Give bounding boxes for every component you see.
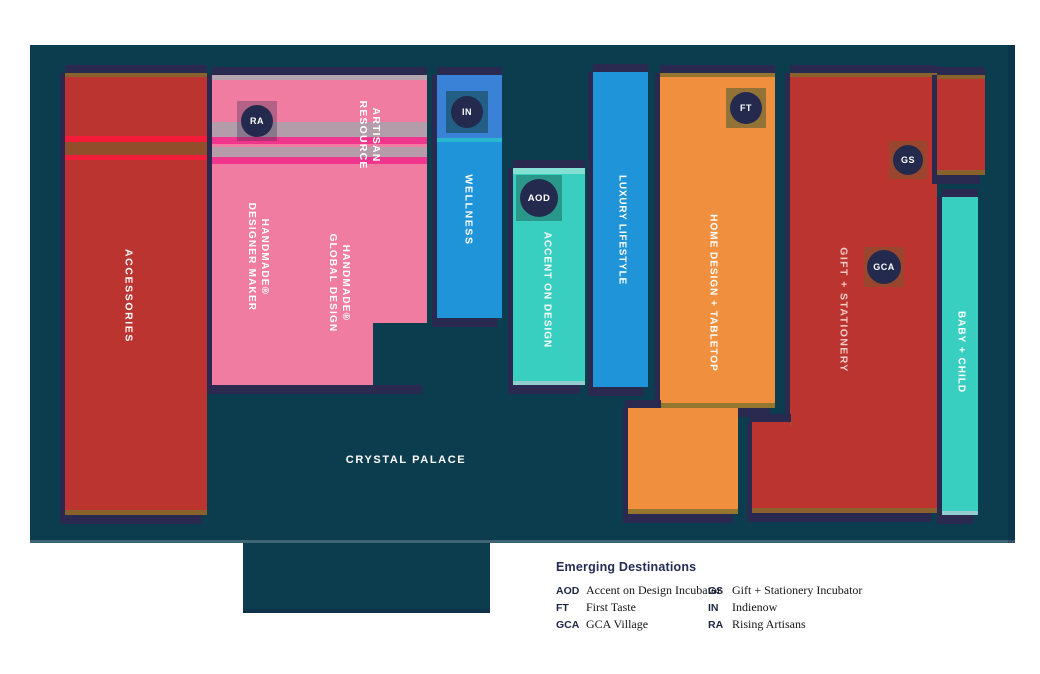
zone-edge-cap [625,400,661,408]
badge-accent-on-design-incubator[interactable]: AOD [520,179,558,217]
map-notch [373,323,427,385]
legend-column-right: GS Gift + Stationery Incubator IN Indien… [708,583,862,630]
label-line: HANDMADE® [258,203,271,311]
legend-code: IN [708,602,732,614]
badge-first-taste[interactable]: FT [730,92,762,124]
zone-gift-stationery[interactable] [790,73,937,513]
zone-label-gift-stationery: GIFT + STATIONERY [837,247,850,372]
zone-label-handmade-global-design: HANDMADE® GLOBAL DESIGN [326,234,352,333]
map-background-extension [243,543,490,613]
badge-gca-village[interactable]: GCA [867,250,901,284]
legend-code: GS [708,585,732,597]
floor-plan-page: ACCESSORIES ARTISAN RESOURCE HANDMADE® D… [0,0,1040,674]
legend-entry-ra: RA Rising Artisans [708,617,862,630]
legend-name: First Taste [586,600,636,615]
legend-code: FT [556,602,586,614]
legend-title: Emerging Destinations [556,560,896,574]
legend-code: GCA [556,619,586,631]
label-line: ARTISAN [369,100,382,169]
legend-name: Gift + Stationery Incubator [732,583,862,598]
legend-name: Accent on Design Incubator [586,583,721,598]
legend-entry-gca: GCA GCA Village [556,617,704,630]
legend-entry-in: IN Indienow [708,600,862,613]
label-line: DESIGNER MAKER [245,203,258,311]
legend-entry-aod: AOD Accent on Design Incubator [556,583,704,596]
zone-label-accessories: ACCESSORIES [122,249,135,343]
legend-name: GCA Village [586,617,648,632]
zone-label-artisan-resource: ARTISAN RESOURCE [356,100,382,169]
zone-label-handmade-designer-maker: HANDMADE® DESIGNER MAKER [245,203,271,311]
legend-code: AOD [556,585,586,597]
zone-label-crystal-palace: CRYSTAL PALACE [346,454,466,466]
legend-code: RA [708,619,732,631]
zone-gift-stationery-lower[interactable] [752,422,790,513]
label-line: RESOURCE [356,100,369,169]
zone-label-accent-on-design: ACCENT ON DESIGN [541,232,554,349]
zone-label-luxury-lifestyle: LUXURY LIFESTYLE [616,175,629,285]
zone-edge-cap [749,414,791,422]
zone-accessories[interactable] [65,73,207,515]
zone-label-baby-child: BABY + CHILD [955,311,968,393]
zone-home-design-tabletop-lower[interactable] [628,408,738,514]
label-line: HANDMADE® [339,234,352,333]
badge-rising-artisans[interactable]: RA [241,105,273,137]
zone-gift-stationery-annex[interactable] [937,75,985,175]
label-line: GLOBAL DESIGN [326,234,339,333]
legend-entry-ft: FT First Taste [556,600,704,613]
legend-name: Rising Artisans [732,617,806,632]
zone-label-wellness: WELLNESS [462,174,475,245]
legend-entry-gs: GS Gift + Stationery Incubator [708,583,862,596]
badge-gift-stationery-incubator[interactable]: GS [893,145,923,175]
badge-indienow[interactable]: IN [451,96,483,128]
legend-name: Indienow [732,600,777,615]
legend: Emerging Destinations AOD Accent on Desi… [556,560,896,630]
legend-column-left: AOD Accent on Design Incubator FT First … [556,583,704,630]
zone-label-home-design-tabletop: HOME DESIGN + TABLETOP [707,214,720,371]
